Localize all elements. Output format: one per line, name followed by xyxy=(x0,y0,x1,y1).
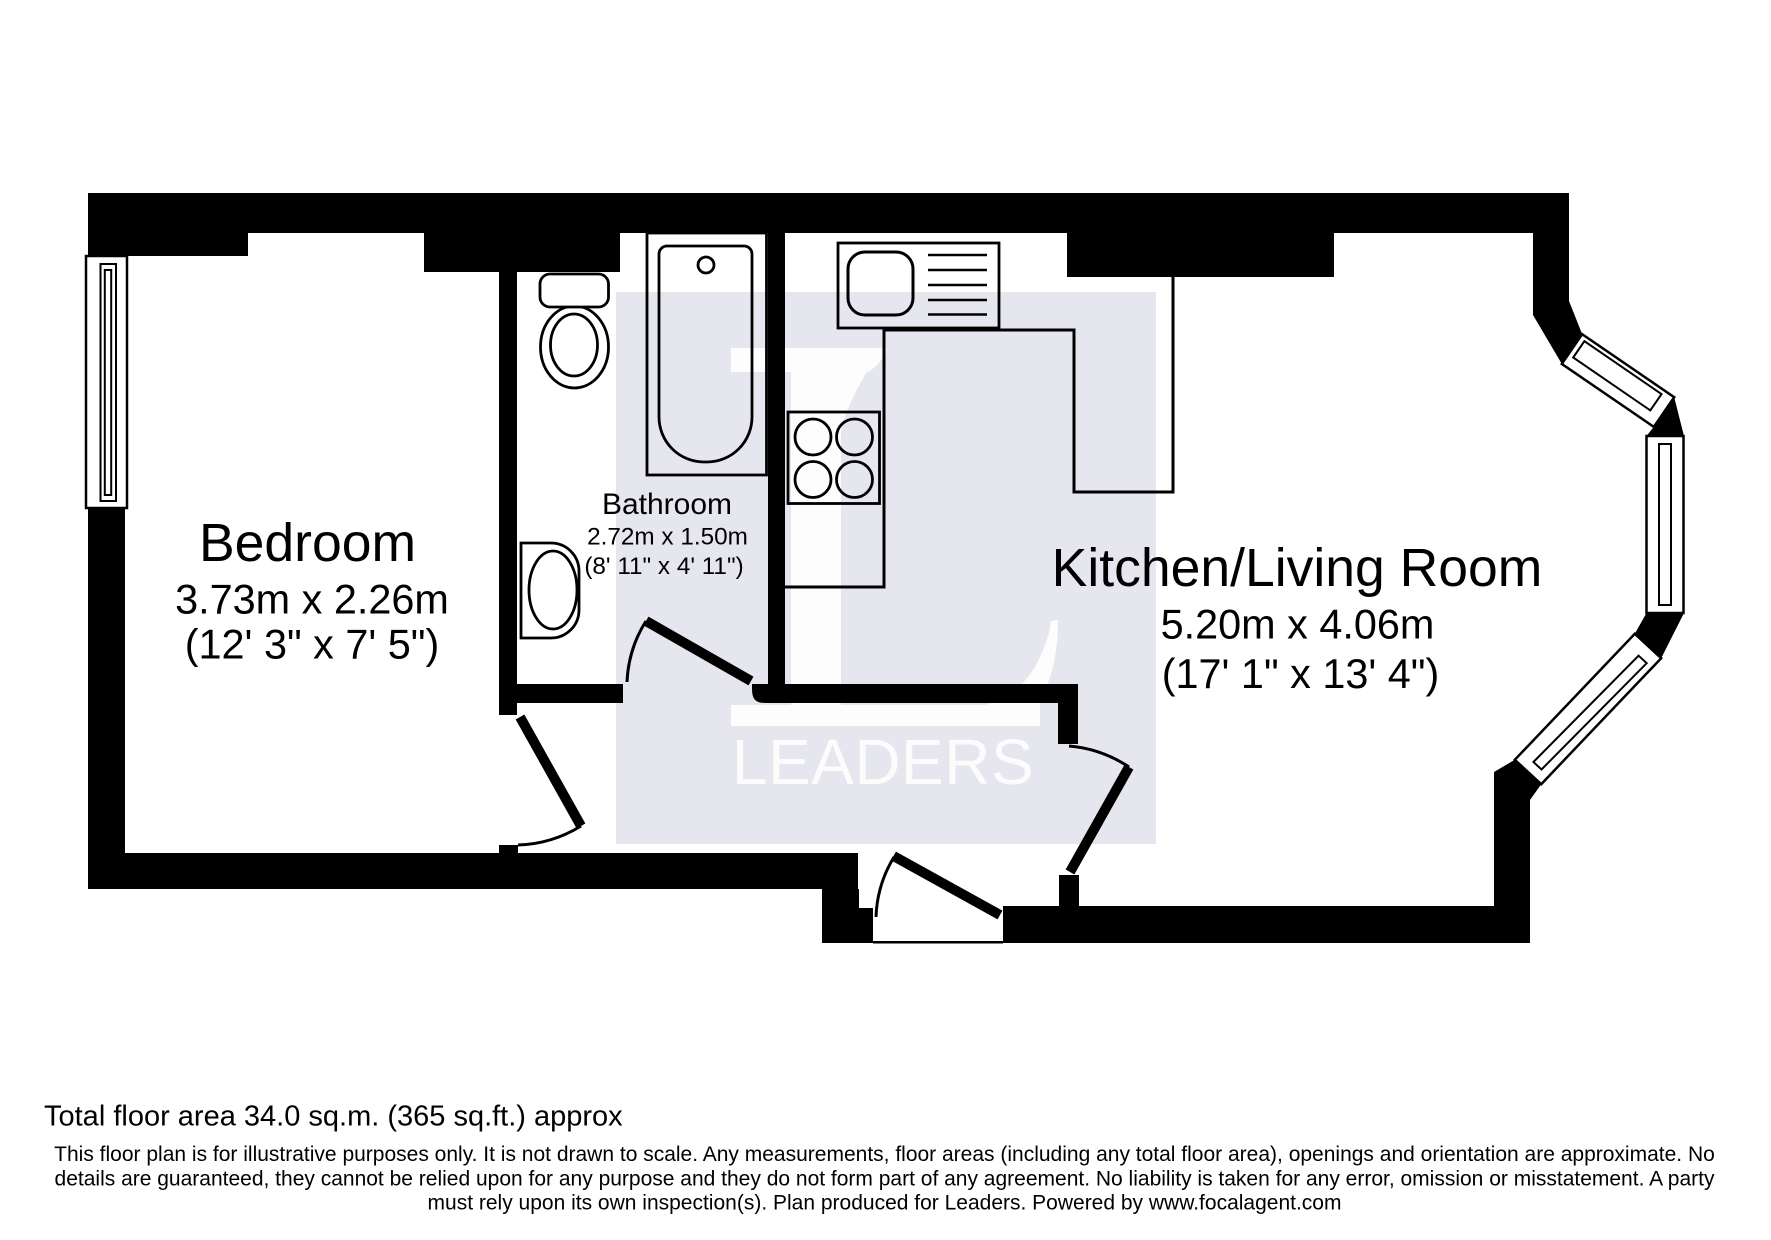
svg-text:3.73m x 2.26m: 3.73m x 2.26m xyxy=(175,577,449,623)
svg-text:Kitchen/Living Room: Kitchen/Living Room xyxy=(1052,539,1543,598)
svg-text:(17' 1" x 13' 4"): (17' 1" x 13' 4") xyxy=(1162,651,1440,697)
svg-text:must rely upon its own inspect: must rely upon its own inspection(s). Pl… xyxy=(428,1192,1342,1215)
svg-text:Bathroom: Bathroom xyxy=(602,488,732,521)
svg-text:LEADERS: LEADERS xyxy=(732,726,1034,798)
svg-text:(12' 3" x 7' 5"): (12' 3" x 7' 5") xyxy=(185,622,440,668)
svg-text:Total floor area 34.0 sq.m. (3: Total floor area 34.0 sq.m. (365 sq.ft.)… xyxy=(44,1101,623,1133)
svg-text:(8' 11" x 4' 11"): (8' 11" x 4' 11") xyxy=(584,553,743,580)
svg-text:Bedroom: Bedroom xyxy=(199,514,416,573)
svg-text:details are guaranteed, they c: details are guaranteed, they cannot be r… xyxy=(55,1167,1715,1190)
svg-text:2.72m x 1.50m: 2.72m x 1.50m xyxy=(587,524,748,551)
svg-text:This floor plan is for illustr: This floor plan is for illustrative purp… xyxy=(54,1143,1715,1166)
svg-text:5.20m x 4.06m: 5.20m x 4.06m xyxy=(1161,602,1435,648)
